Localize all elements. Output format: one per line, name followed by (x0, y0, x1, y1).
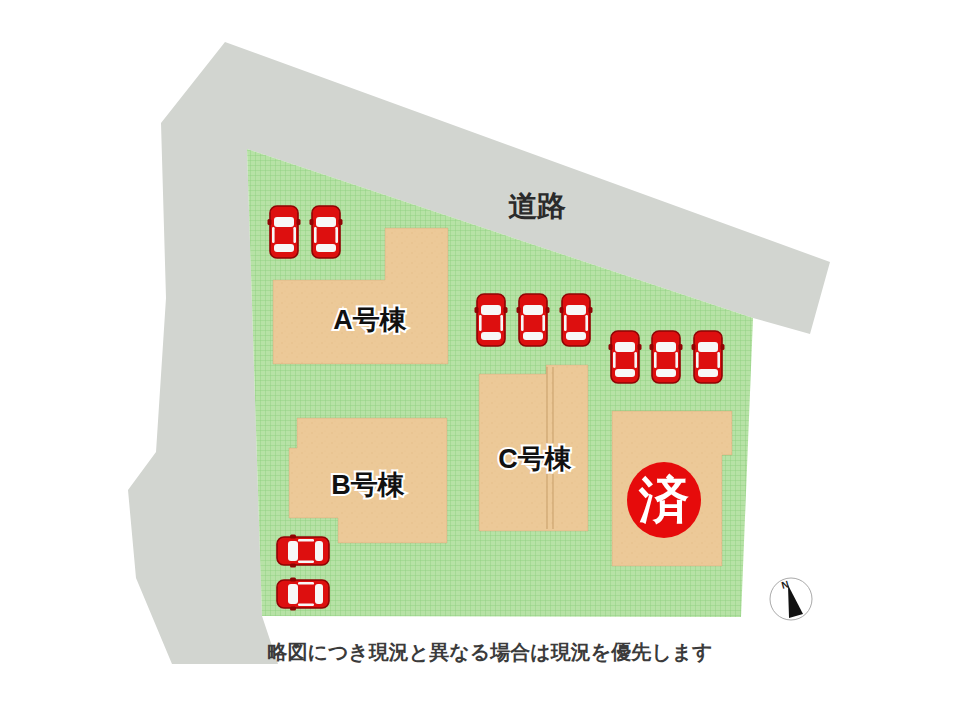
car-icon (268, 206, 301, 258)
building-label: B号棟 (331, 470, 405, 500)
road-label: 道路 (508, 190, 566, 222)
building-label: A号棟 (333, 305, 407, 335)
car-icon (692, 331, 725, 383)
compass-north-label: N (780, 578, 790, 590)
car-icon (560, 294, 593, 346)
car-icon (277, 578, 329, 611)
building-label: C号棟 (498, 444, 572, 474)
site-plan-page: A号棟B号棟C号棟 (0, 0, 960, 720)
car-icon (609, 331, 642, 383)
sold-badge-label: 済 (638, 472, 689, 528)
site-plan-svg: A号棟B号棟C号棟 (0, 0, 960, 720)
compass-needle (788, 585, 803, 618)
compass-icon: N (770, 578, 812, 620)
disclaimer-note: 略図につき現況と異なる場合は現況を優先します (267, 641, 712, 663)
car-icon (310, 206, 343, 258)
sold-badge: 済 (627, 462, 701, 538)
car-icon (650, 331, 683, 383)
car-icon (277, 535, 329, 568)
car-icon (517, 294, 550, 346)
car-icon (475, 294, 508, 346)
